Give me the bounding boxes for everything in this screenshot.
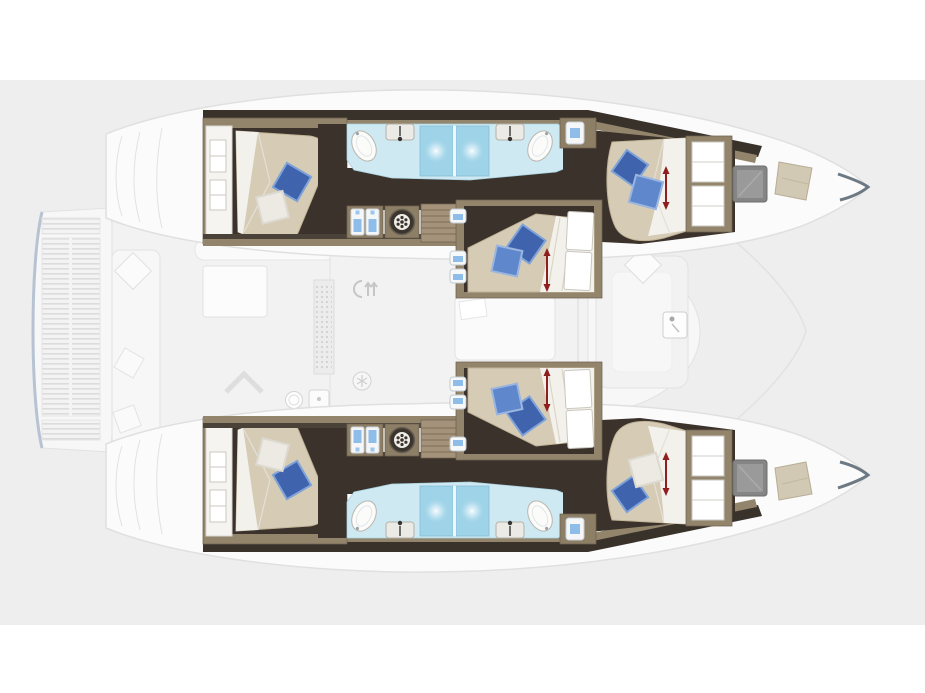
double-bed bbox=[607, 138, 690, 241]
galley-sink-icon bbox=[286, 392, 303, 409]
bed-head-panel bbox=[686, 430, 732, 526]
wardrobe-shirt-icon bbox=[351, 427, 364, 453]
pillow-icon bbox=[492, 384, 523, 415]
bathroom bbox=[347, 482, 566, 538]
porthole-icon bbox=[450, 269, 466, 283]
cabin-door bbox=[560, 118, 596, 148]
teak-grating bbox=[42, 420, 100, 440]
pillow-icon bbox=[629, 175, 663, 209]
pillow-icon bbox=[256, 438, 289, 471]
stove-icon bbox=[309, 390, 329, 408]
teak-grating bbox=[42, 218, 100, 234]
porthole-icon bbox=[450, 437, 466, 451]
porthole-icon bbox=[450, 377, 466, 391]
washing-machine bbox=[385, 424, 419, 456]
mid-cabin-upper bbox=[450, 200, 602, 298]
porthole-icon bbox=[450, 251, 466, 265]
cabin-door bbox=[560, 514, 596, 544]
stern-platform bbox=[33, 208, 116, 452]
wardrobe-shirt-icon bbox=[366, 209, 379, 235]
wardrobe-shirt-icon bbox=[366, 427, 379, 453]
pillow-icon bbox=[256, 191, 289, 224]
double-bed bbox=[607, 421, 690, 524]
porthole-icon bbox=[450, 395, 466, 409]
cockpit-table bbox=[203, 266, 267, 317]
pillow-icon bbox=[629, 453, 663, 487]
mid-cabin-lower bbox=[450, 362, 602, 460]
corridor-floor bbox=[318, 422, 347, 538]
catamaran-plan-svg: catamaran-interior-deck-plan bbox=[0, 0, 925, 693]
skylight-icon bbox=[775, 462, 812, 500]
wardrobe bbox=[347, 424, 383, 456]
toilet-icon bbox=[386, 521, 414, 538]
deck-hatch-icon bbox=[733, 460, 767, 496]
wardrobe-shirt-icon bbox=[351, 209, 364, 235]
corridor-floor bbox=[318, 124, 347, 240]
bed-head-panel bbox=[686, 136, 732, 232]
washing-machine bbox=[385, 206, 419, 238]
skylight-icon bbox=[775, 162, 812, 200]
snowflake-icon bbox=[353, 372, 371, 390]
porthole-icon bbox=[450, 209, 466, 223]
pillow-icon bbox=[492, 246, 523, 277]
windlass-icon bbox=[663, 312, 687, 338]
deck-hatch-icon bbox=[733, 166, 767, 202]
toilet-icon bbox=[386, 124, 414, 141]
toilet-icon bbox=[496, 521, 524, 538]
toilet-icon bbox=[496, 124, 524, 141]
floorplan-image: catamaran-interior-deck-plan bbox=[0, 0, 925, 693]
saloon-cushion bbox=[459, 298, 487, 319]
wardrobe bbox=[347, 206, 383, 238]
bathroom bbox=[347, 124, 566, 180]
